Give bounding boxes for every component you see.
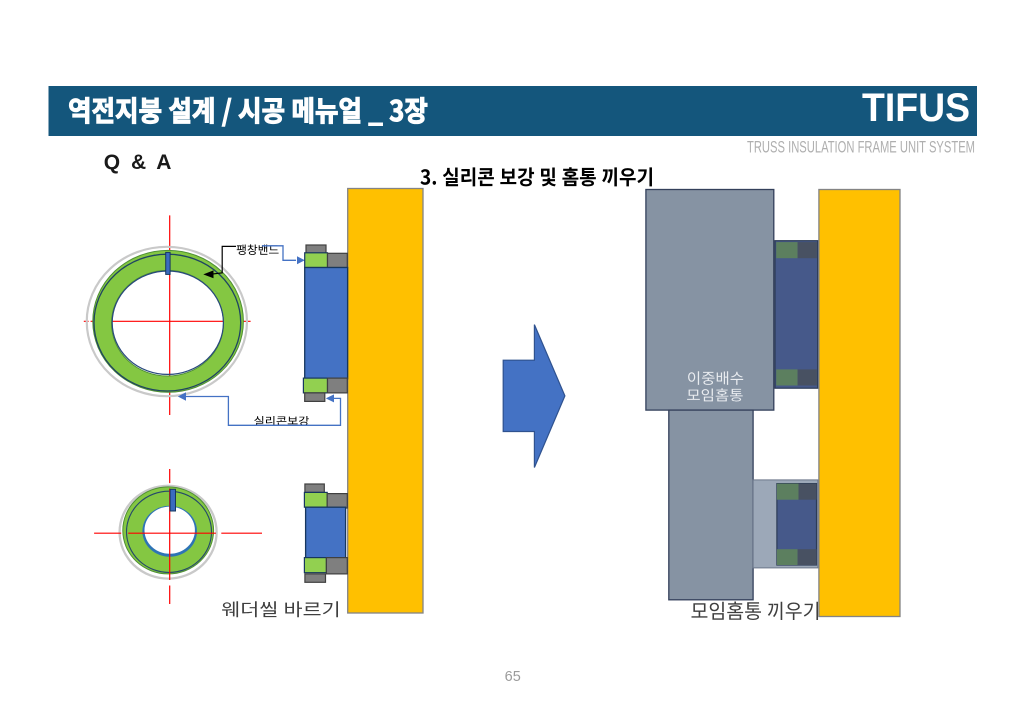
svg-text:TRUSS INSULATION FRAME UNIT SY: TRUSS INSULATION FRAME UNIT SYSTEM xyxy=(747,139,975,157)
svg-text:TIFUS: TIFUS xyxy=(862,86,970,130)
svg-text:65: 65 xyxy=(505,669,521,685)
svg-text:Q & A: Q & A xyxy=(104,151,172,174)
